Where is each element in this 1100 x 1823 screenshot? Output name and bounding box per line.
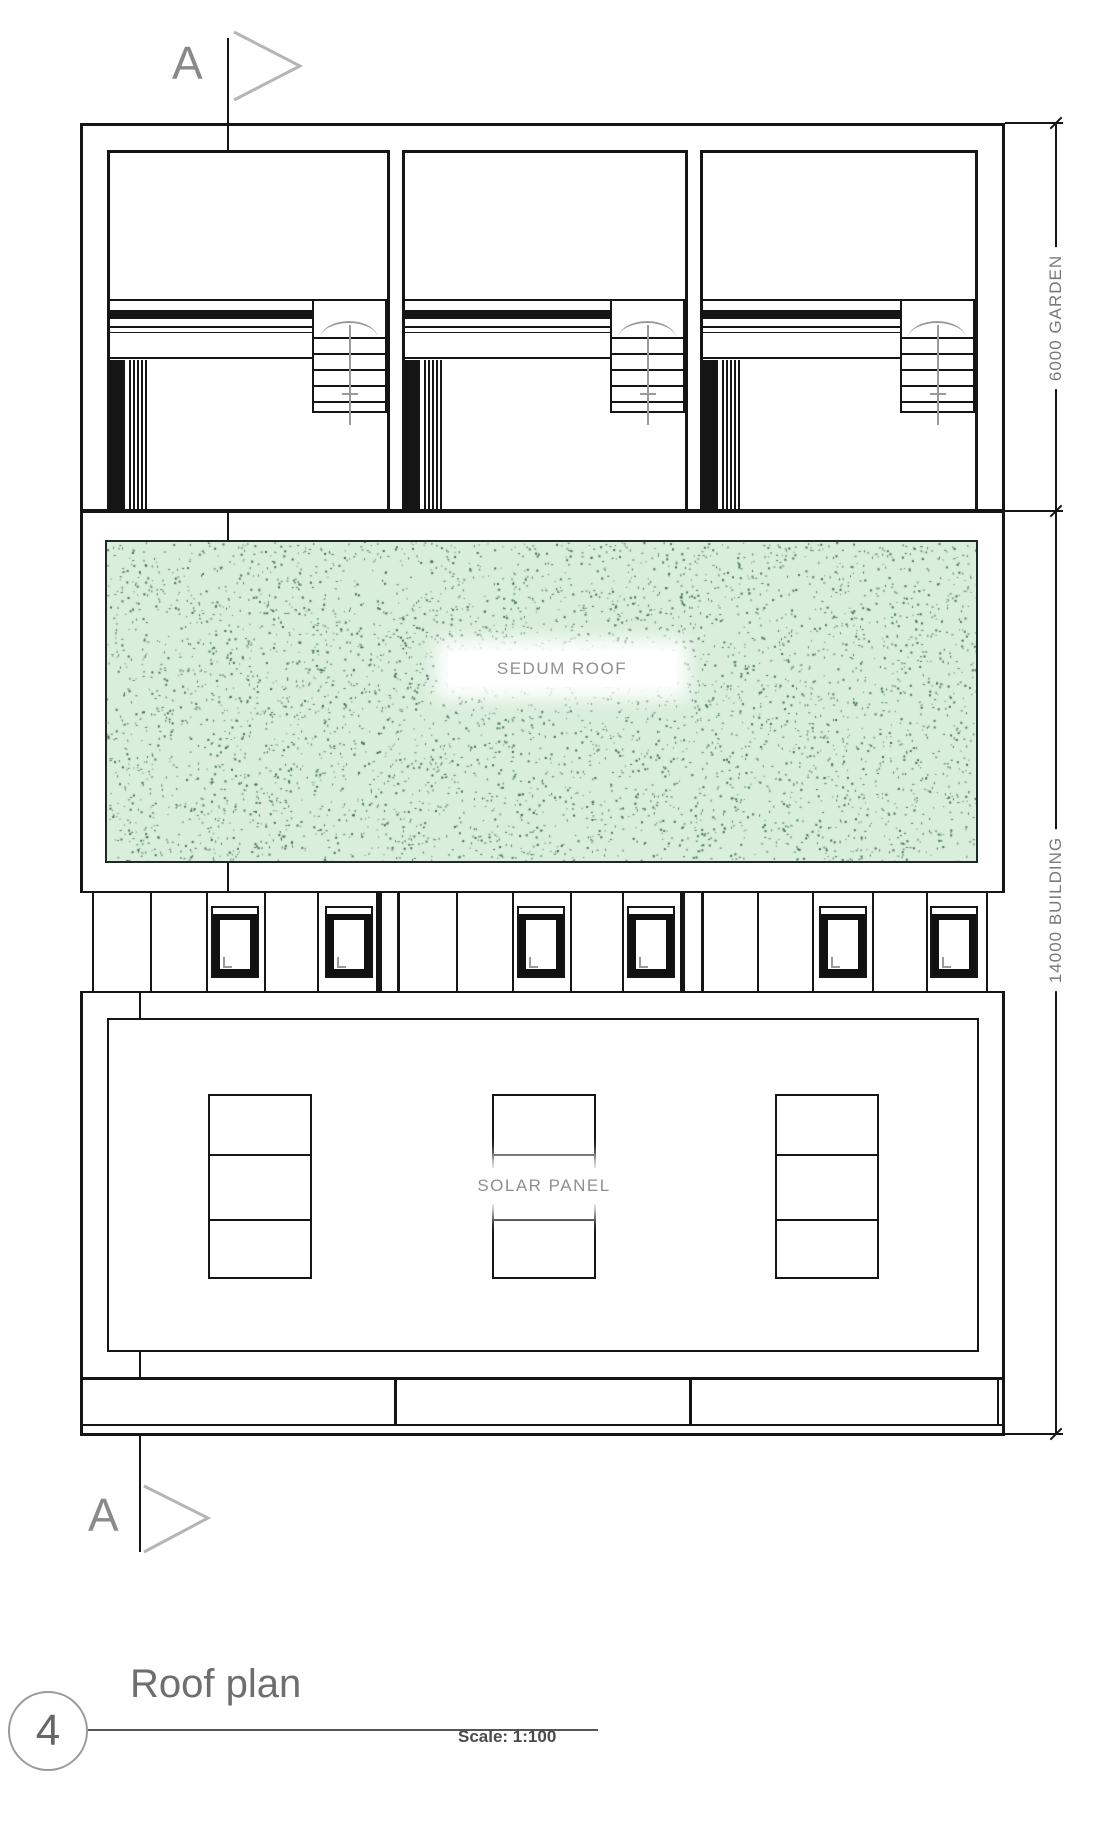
deck-line bbox=[110, 326, 312, 328]
deck-line bbox=[703, 332, 900, 333]
garden-bay bbox=[107, 150, 390, 512]
rooflight-head-slot bbox=[629, 908, 673, 917]
deck-line bbox=[405, 299, 610, 301]
glazing-line bbox=[730, 360, 732, 509]
strip-divider bbox=[689, 1380, 692, 1424]
rooflight bbox=[517, 906, 565, 978]
deck-line bbox=[110, 299, 312, 301]
deck-line bbox=[405, 310, 610, 319]
rooflight-glass bbox=[939, 920, 969, 969]
rooflight-glass bbox=[828, 920, 858, 969]
wall-bar bbox=[405, 360, 420, 509]
band-divider bbox=[92, 893, 94, 991]
rooflight-opening-mark bbox=[223, 957, 232, 968]
building-dimension-label: 14000 BUILDING bbox=[1046, 829, 1066, 991]
band-divider bbox=[986, 893, 988, 991]
rooflight bbox=[930, 906, 978, 978]
deck-line bbox=[110, 357, 312, 359]
drawing-scale: Scale: 1:100 bbox=[458, 1727, 556, 1747]
deck-line bbox=[405, 357, 610, 359]
garden-bay bbox=[700, 150, 978, 512]
wall-bar bbox=[703, 360, 718, 509]
glazing-line bbox=[137, 360, 139, 509]
band-divider bbox=[206, 893, 208, 991]
solar-cell-divider bbox=[210, 1219, 310, 1221]
deck-line bbox=[703, 357, 900, 359]
stair-arrow-cross bbox=[640, 393, 656, 395]
sedum-roof-label: SEDUM ROOF bbox=[448, 651, 676, 687]
rooflight-frame bbox=[213, 917, 257, 976]
stair-centerline bbox=[349, 325, 351, 425]
deck-line bbox=[110, 332, 312, 333]
strip-inner-line bbox=[83, 1424, 1002, 1426]
rooflight-opening-mark bbox=[942, 957, 951, 968]
deck-line bbox=[405, 326, 610, 328]
band-divider bbox=[872, 893, 874, 991]
rooflight-head-slot bbox=[932, 908, 976, 917]
band-divider bbox=[812, 893, 814, 991]
band-divider bbox=[757, 893, 759, 991]
drawing-title: Roof plan bbox=[130, 1662, 301, 1706]
rooflight bbox=[819, 906, 867, 978]
solar-cell-divider bbox=[494, 1219, 594, 1221]
band-divider bbox=[622, 893, 624, 991]
rooflight-opening-mark bbox=[639, 957, 648, 968]
sedum-roof-area bbox=[105, 540, 978, 863]
stair bbox=[610, 299, 685, 413]
roof-plan-sheet: A A SEDUM ROOF SOLAR PANEL 6000 GARDEN 1… bbox=[0, 0, 1100, 1823]
strip-divider bbox=[394, 1380, 397, 1424]
garden-bay bbox=[402, 150, 688, 512]
glazing-line bbox=[440, 360, 442, 509]
stair-arrow-cross bbox=[342, 393, 358, 395]
band-divider bbox=[456, 893, 458, 991]
rooflight-head-slot bbox=[213, 908, 257, 917]
glazing-line bbox=[432, 360, 434, 509]
rooflight bbox=[325, 906, 373, 978]
stair-arrow-cross bbox=[930, 393, 946, 395]
party-wall-divider bbox=[397, 893, 400, 991]
band-divider bbox=[150, 893, 152, 991]
wall-bar bbox=[110, 360, 125, 509]
party-wall-divider bbox=[701, 893, 704, 991]
section-arrow-icon bbox=[142, 1484, 212, 1554]
rooflight-glass bbox=[636, 920, 666, 969]
glazing-line bbox=[738, 360, 740, 509]
band-divider bbox=[926, 893, 928, 991]
rooflight-band bbox=[80, 891, 1005, 993]
stair bbox=[312, 299, 387, 413]
bottom-edge-strip bbox=[80, 1377, 1005, 1436]
band-divider bbox=[264, 893, 266, 991]
solar-cell-divider bbox=[777, 1219, 877, 1221]
glazing-line bbox=[734, 360, 736, 509]
rooflight bbox=[211, 906, 259, 978]
rooflight-glass bbox=[220, 920, 250, 969]
deck-line bbox=[703, 299, 900, 301]
rooflight-frame bbox=[932, 917, 976, 976]
glazing-line bbox=[424, 360, 426, 509]
band-divider bbox=[317, 893, 319, 991]
rooflight-head-slot bbox=[519, 908, 563, 917]
section-marker-a-top-label: A bbox=[172, 40, 203, 86]
party-wall-divider bbox=[680, 893, 685, 991]
rooflight-glass bbox=[334, 920, 364, 969]
rooflight-head-slot bbox=[327, 908, 371, 917]
rooflight-frame bbox=[629, 917, 673, 976]
rooflight-opening-mark bbox=[337, 957, 346, 968]
rooflight-frame bbox=[821, 917, 865, 976]
stair-centerline bbox=[937, 325, 939, 425]
party-wall-divider bbox=[376, 893, 382, 991]
rooflight-opening-mark bbox=[831, 957, 840, 968]
deck-line bbox=[703, 326, 900, 328]
deck-line bbox=[703, 310, 900, 319]
solar-cell-divider bbox=[777, 1154, 877, 1156]
solar-array bbox=[775, 1094, 879, 1279]
solar-cell-divider bbox=[210, 1154, 310, 1156]
stair-centerline bbox=[647, 325, 649, 425]
glazing-line bbox=[141, 360, 143, 509]
glazing-line bbox=[133, 360, 135, 509]
rooflight-frame bbox=[519, 917, 563, 976]
band-divider bbox=[570, 893, 572, 991]
section-marker-a-bottom-label: A bbox=[88, 1492, 119, 1538]
rooflight-opening-mark bbox=[529, 957, 538, 968]
solar-array bbox=[208, 1094, 312, 1279]
glazing-line bbox=[726, 360, 728, 509]
solar-panel-label: SOLAR PANEL bbox=[438, 1168, 650, 1204]
glazing-line bbox=[722, 360, 724, 509]
rooflight-glass bbox=[526, 920, 556, 969]
drawing-number: 4 bbox=[36, 1706, 60, 1756]
rooflight-head-slot bbox=[821, 908, 865, 917]
solar-cell-divider bbox=[494, 1154, 594, 1156]
sedum-speckle-texture bbox=[107, 542, 976, 861]
garden-dimension-label: 6000 GARDEN bbox=[1046, 247, 1066, 389]
stair bbox=[900, 299, 975, 413]
strip-divider bbox=[997, 1380, 999, 1424]
glazing-line bbox=[145, 360, 147, 509]
rooflight-frame bbox=[327, 917, 371, 976]
glazing-line bbox=[428, 360, 430, 509]
drawing-number-bubble: 4 bbox=[8, 1691, 88, 1771]
glazing-line bbox=[129, 360, 131, 509]
deck-line bbox=[110, 310, 312, 319]
rooflight bbox=[627, 906, 675, 978]
glazing-line bbox=[436, 360, 438, 509]
section-arrow-icon bbox=[232, 30, 304, 102]
band-divider bbox=[512, 893, 514, 991]
deck-line bbox=[405, 332, 610, 333]
